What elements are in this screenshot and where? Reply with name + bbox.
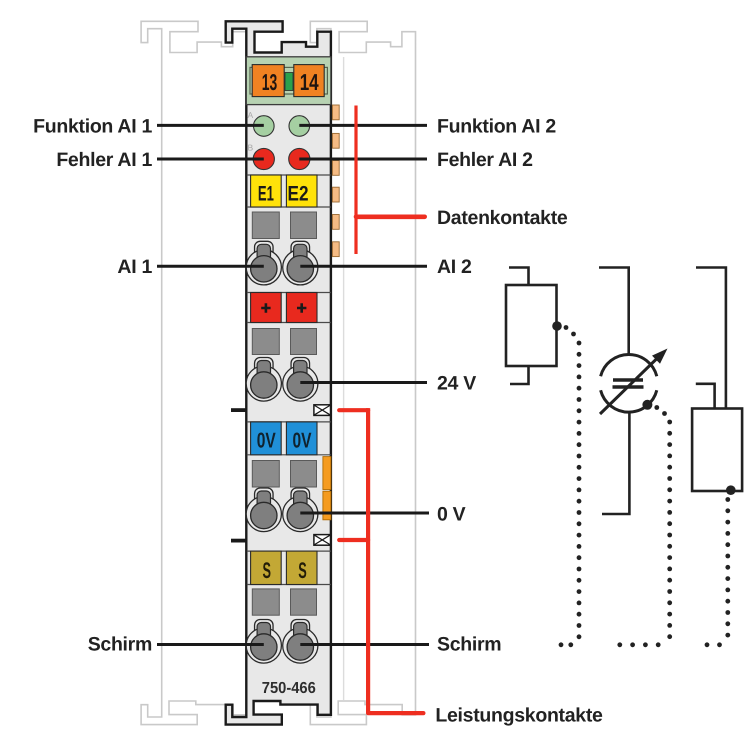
svg-text:AI 1: AI 1 xyxy=(117,256,152,278)
svg-text:B: B xyxy=(248,143,254,153)
svg-text:Funktion AI 1: Funktion AI 1 xyxy=(33,115,152,137)
svg-text:14: 14 xyxy=(300,69,319,95)
svg-text:Leistungskontakte: Leistungskontakte xyxy=(435,705,603,727)
svg-text:Fehler AI 2: Fehler AI 2 xyxy=(437,149,533,171)
svg-text:E2: E2 xyxy=(288,183,309,206)
svg-text:13: 13 xyxy=(262,69,278,95)
svg-text:Fehler AI 1: Fehler AI 1 xyxy=(56,149,152,171)
svg-text:S: S xyxy=(298,558,307,583)
svg-text:Schirm: Schirm xyxy=(437,633,501,655)
svg-text:AI 2: AI 2 xyxy=(437,256,472,278)
svg-text:E1: E1 xyxy=(258,183,274,206)
svg-text:A: A xyxy=(248,110,254,120)
svg-text:24 V: 24 V xyxy=(437,372,476,394)
svg-text:Schirm: Schirm xyxy=(88,633,152,655)
svg-text:750-466: 750-466 xyxy=(262,680,316,697)
svg-text:Datenkontakte: Datenkontakte xyxy=(437,207,568,229)
svg-text:0V: 0V xyxy=(257,428,276,452)
svg-text:0 V: 0 V xyxy=(437,503,466,525)
svg-text:0V: 0V xyxy=(293,428,312,452)
svg-text:Funktion AI 2: Funktion AI 2 xyxy=(437,115,556,137)
svg-text:S: S xyxy=(262,558,271,583)
